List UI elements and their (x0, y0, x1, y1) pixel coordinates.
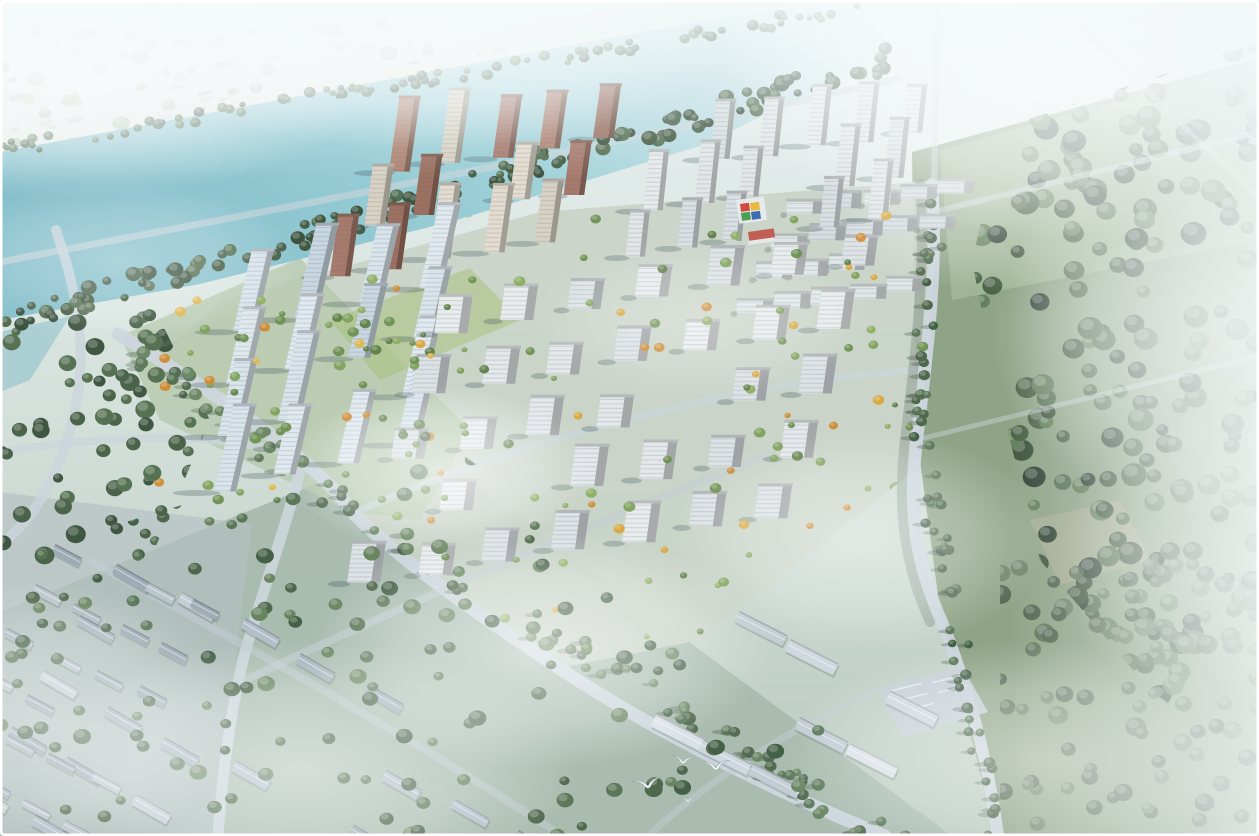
right-atmosphere (1009, 0, 1259, 836)
aerial-masterplan-rendering (0, 0, 1259, 836)
rendering-canvas (0, 0, 1259, 836)
